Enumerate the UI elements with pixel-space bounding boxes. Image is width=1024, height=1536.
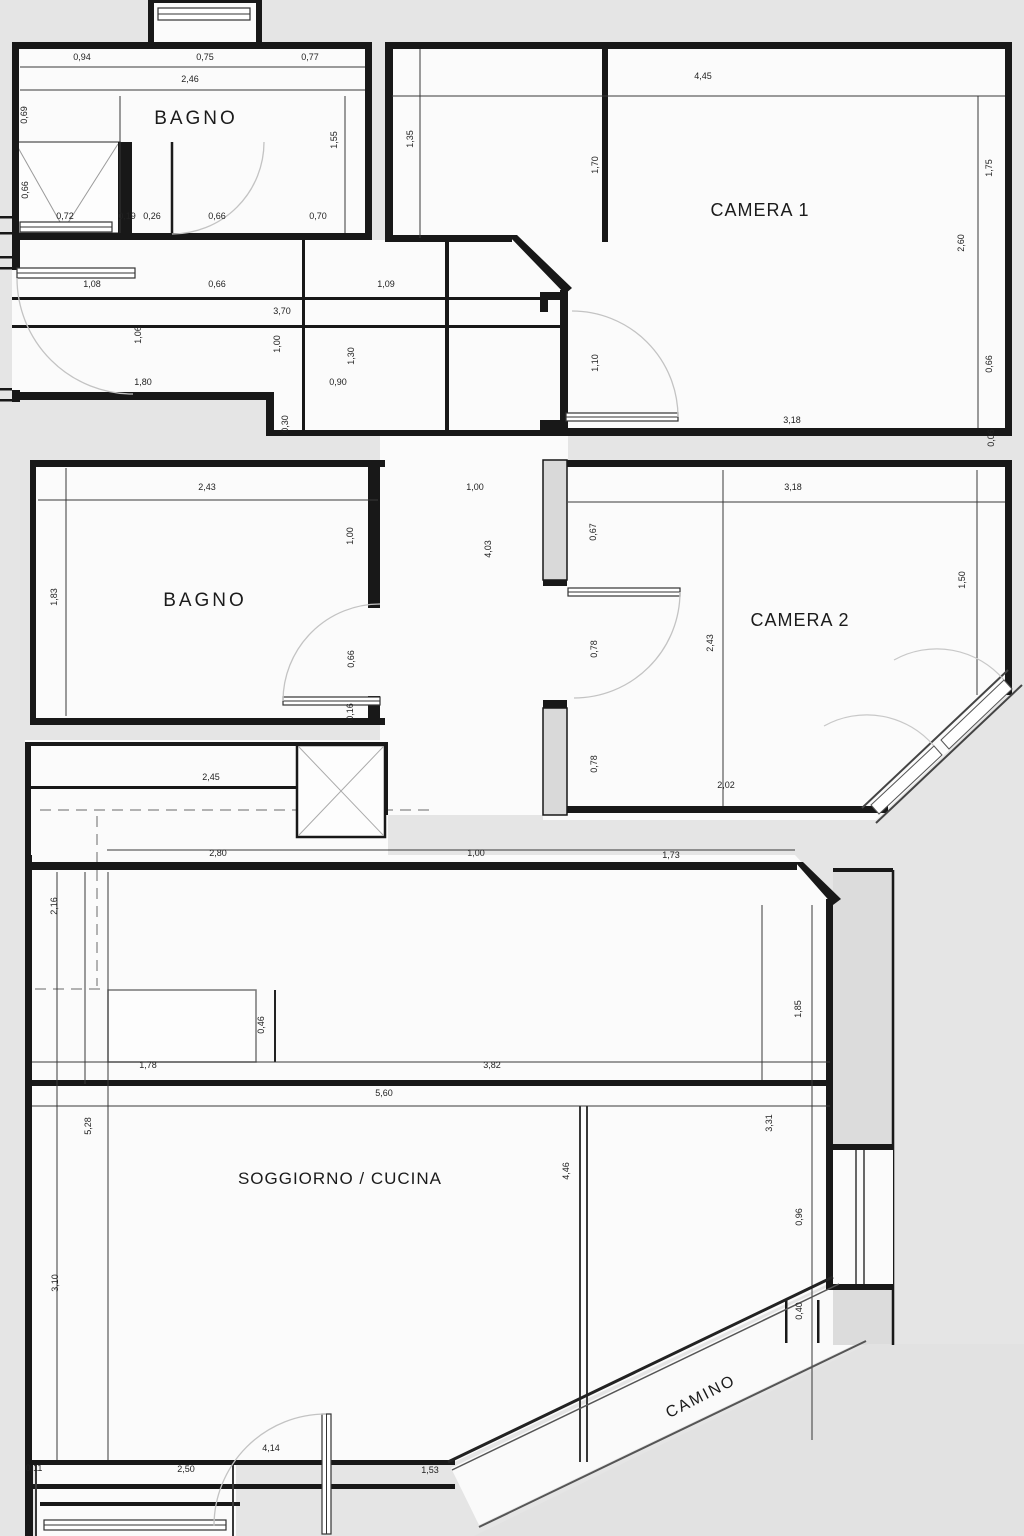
- dim-label: 0,69: [19, 106, 29, 124]
- room-camera-2-area: [543, 460, 1012, 820]
- dim-label: 1,08: [83, 279, 101, 289]
- dim-label: 1,00: [466, 482, 484, 492]
- dim-label: 0,66: [984, 355, 994, 373]
- dim-label: 0,40: [794, 1302, 804, 1320]
- room-label-bagno-1: BAGNO: [154, 108, 238, 129]
- dim-label: 1,00: [467, 848, 485, 858]
- dim-label: 0,19: [118, 211, 136, 221]
- room-label-soggiorno: SOGGIORNO / CUCINA: [238, 1169, 442, 1188]
- room-label-camera-2: CAMERA 2: [750, 610, 849, 630]
- floor-plan-drawing: BAGNO CAMERA 1 BAGNO CAMERA 2 SOGGIORNO …: [0, 0, 1024, 1536]
- dim-label: 1,53: [421, 1465, 439, 1475]
- dim-label: 1,06: [133, 326, 143, 344]
- hallway-area: [380, 436, 545, 815]
- dim-label: 1,75: [984, 159, 994, 177]
- hallway-area-2: [545, 436, 568, 460]
- dim-label: 1,80: [134, 377, 152, 387]
- dim-label: 4,45: [694, 71, 712, 81]
- dim-label: 1,85: [793, 1000, 803, 1018]
- dim-label: 1,35: [405, 130, 415, 148]
- dim-label: 2,45: [202, 772, 220, 782]
- dim-label: 0,90: [329, 377, 347, 387]
- dim-label: 4,03: [483, 540, 493, 558]
- right-window-opening: [833, 1150, 893, 1284]
- dim-label: 0,78: [589, 755, 599, 773]
- dim-label: 2,60: [956, 234, 966, 252]
- dim-label: 0,72: [56, 211, 74, 221]
- dim-label: 1,78: [139, 1060, 157, 1070]
- dim-label: 4,14: [262, 1443, 280, 1453]
- dim-label: 2,16: [49, 897, 59, 915]
- dim-label: 0,11: [26, 1463, 43, 1473]
- dim-label: 0,30: [280, 415, 290, 433]
- dim-label: 1,30: [346, 347, 356, 365]
- dim-label: 5,28: [83, 1117, 93, 1135]
- dim-label: 1,55: [329, 131, 339, 149]
- dim-label: 0,75: [196, 52, 214, 62]
- dim-label: 1,83: [49, 588, 59, 606]
- dim-label: 0,96: [794, 1208, 804, 1226]
- hallway-wall-upper: [543, 460, 567, 580]
- dim-label: 0,77: [301, 52, 319, 62]
- dim-label: 0,94: [73, 52, 91, 62]
- floor-plan: BAGNO CAMERA 1 BAGNO CAMERA 2 SOGGIORNO …: [0, 0, 1024, 1536]
- dim-label: 0,46: [256, 1016, 266, 1034]
- dim-label: 0,66: [208, 279, 226, 289]
- kitchen-counter: [108, 990, 256, 1062]
- bay-top-cap: [833, 868, 893, 872]
- dim-label: 2,46: [181, 74, 199, 84]
- dim-label: 4,46: [561, 1162, 571, 1180]
- dim-label: 0,70: [309, 211, 327, 221]
- dim-label: 1,10: [590, 354, 600, 372]
- dim-label: 0,67: [588, 523, 598, 541]
- dim-label: 3,70: [273, 306, 291, 316]
- dim-label: 1,70: [590, 156, 600, 174]
- dim-label: 3,31: [764, 1114, 774, 1132]
- dim-label: 3,18: [784, 482, 802, 492]
- dim-label: 0,26: [143, 211, 161, 221]
- top-window-bay: [148, 0, 262, 44]
- dim-label: 1,09: [377, 279, 395, 289]
- dim-label: 2,43: [198, 482, 216, 492]
- dim-label: 2,43: [705, 634, 715, 652]
- dim-label: 0,78: [589, 640, 599, 658]
- dim-label: 0,66: [346, 650, 356, 668]
- dim-label: 3,82: [483, 1060, 501, 1070]
- dim-label: 1,73: [662, 850, 680, 860]
- dim-label: 2,80: [209, 848, 227, 858]
- dim-label: 3,10: [50, 1274, 60, 1292]
- dim-label: 0,66: [208, 211, 226, 221]
- dim-label: 1,00: [272, 335, 282, 353]
- room-label-bagno-2: BAGNO: [163, 590, 247, 611]
- dim-label: 0,06: [986, 429, 996, 447]
- dim-label: 1,50: [957, 571, 967, 589]
- dim-label: 3,18: [783, 415, 801, 425]
- dim-label: 0,16: [345, 703, 355, 721]
- dim-label: 2,50: [177, 1464, 195, 1474]
- dim-label: 2,02: [717, 780, 735, 790]
- dim-label: 5,60: [375, 1088, 393, 1098]
- room-label-camera-1: CAMERA 1: [710, 200, 809, 220]
- dim-label: 0,66: [20, 181, 30, 199]
- dim-label: 1,00: [345, 527, 355, 545]
- hallway-wall-lower: [543, 708, 567, 815]
